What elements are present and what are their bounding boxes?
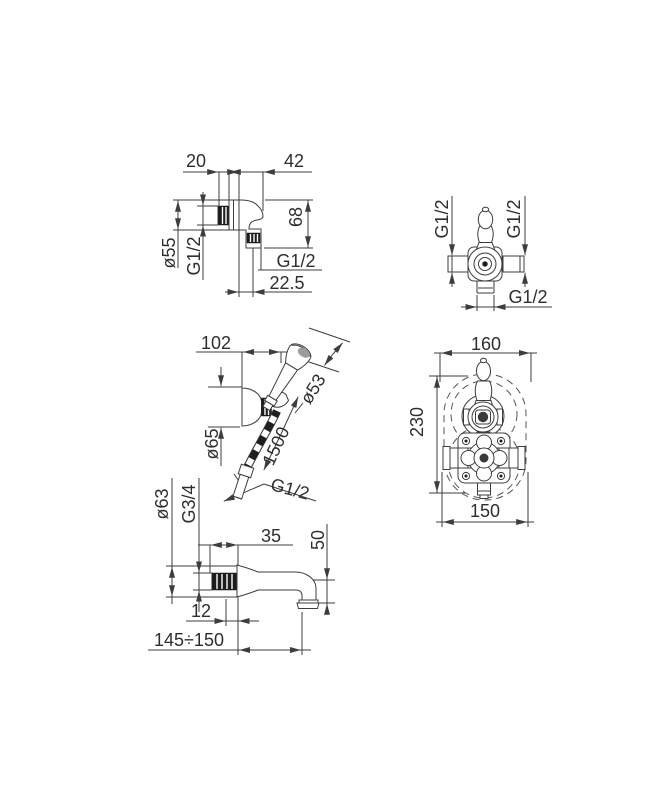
dim-inlet-thread: G1/2 <box>184 236 204 275</box>
dim-left-connection: G1/2 <box>432 199 452 238</box>
technical-drawing-page: 20 42 68 ø55 G1/2 G1/2 22.5 <box>0 0 666 800</box>
dim-recess-height: 230 <box>407 407 427 437</box>
dim-projection: 42 <box>284 151 304 171</box>
thermostat-part <box>443 358 526 500</box>
dim-flange-depth: 35 <box>261 526 281 546</box>
bottom-port <box>477 280 494 293</box>
spout-part <box>212 565 319 609</box>
hose-end-fitting <box>231 464 254 499</box>
dim-spout-flange-diameter: ø63 <box>152 488 172 519</box>
dim-bottom-connection: G1/2 <box>508 287 547 307</box>
dim-head-diameter: ø53 <box>296 371 329 408</box>
view-bath-spout: ø63 G3/4 35 50 12 145÷150 <box>148 478 335 655</box>
dim-outlet-offset: 22.5 <box>269 273 304 293</box>
view-thermostat-rough-in: 160 230 150 <box>407 334 537 527</box>
wall-union-part <box>218 200 263 248</box>
dim-spout-projection: 145÷150 <box>154 630 224 650</box>
thermostat-handle-neck <box>475 381 491 401</box>
lever-handle-head <box>478 210 492 228</box>
spout-nozzle-lip <box>297 603 319 609</box>
dim-recess-width: 160 <box>471 334 501 354</box>
bottom-port-stub <box>478 483 491 495</box>
dim-thread-length-spout: 12 <box>191 601 211 621</box>
view-wall-union: 20 42 68 ø55 G1/2 G1/2 22.5 <box>159 151 322 297</box>
inlet-thread <box>219 206 230 225</box>
view-hand-shower: 102 ø53 1500 ø65 G1/2 <box>196 328 350 504</box>
dim-flange-diameter: ø55 <box>159 237 179 268</box>
dim-height: 68 <box>286 207 306 227</box>
dim-outlet-drop: 50 <box>308 530 328 550</box>
left-pipe <box>448 256 468 272</box>
dim-thread-length: 20 <box>186 151 206 171</box>
spout-body <box>237 565 316 600</box>
lever-handle-tip <box>482 207 488 211</box>
spout-thread <box>212 573 237 590</box>
dim-outlet-thread: G1/2 <box>276 251 315 271</box>
dim-bracket-projection: 102 <box>201 333 231 353</box>
dim-spout-thread: G3/4 <box>179 484 199 523</box>
dim-hose-connection: G1/2 <box>269 474 312 503</box>
wall-bracket-cone <box>242 388 262 426</box>
dim-body-width: 150 <box>470 501 500 521</box>
dim-bracket-diameter: ø65 <box>202 428 222 459</box>
right-pipe <box>503 256 524 272</box>
view-valve-trim: G1/2 G1/2 G1/2 <box>432 196 552 311</box>
dim-right-connection: G1/2 <box>504 199 524 238</box>
thermostat-handle-head <box>477 361 491 380</box>
faucet-dimension-drawing: 20 42 68 ø55 G1/2 G1/2 22.5 <box>0 0 666 800</box>
